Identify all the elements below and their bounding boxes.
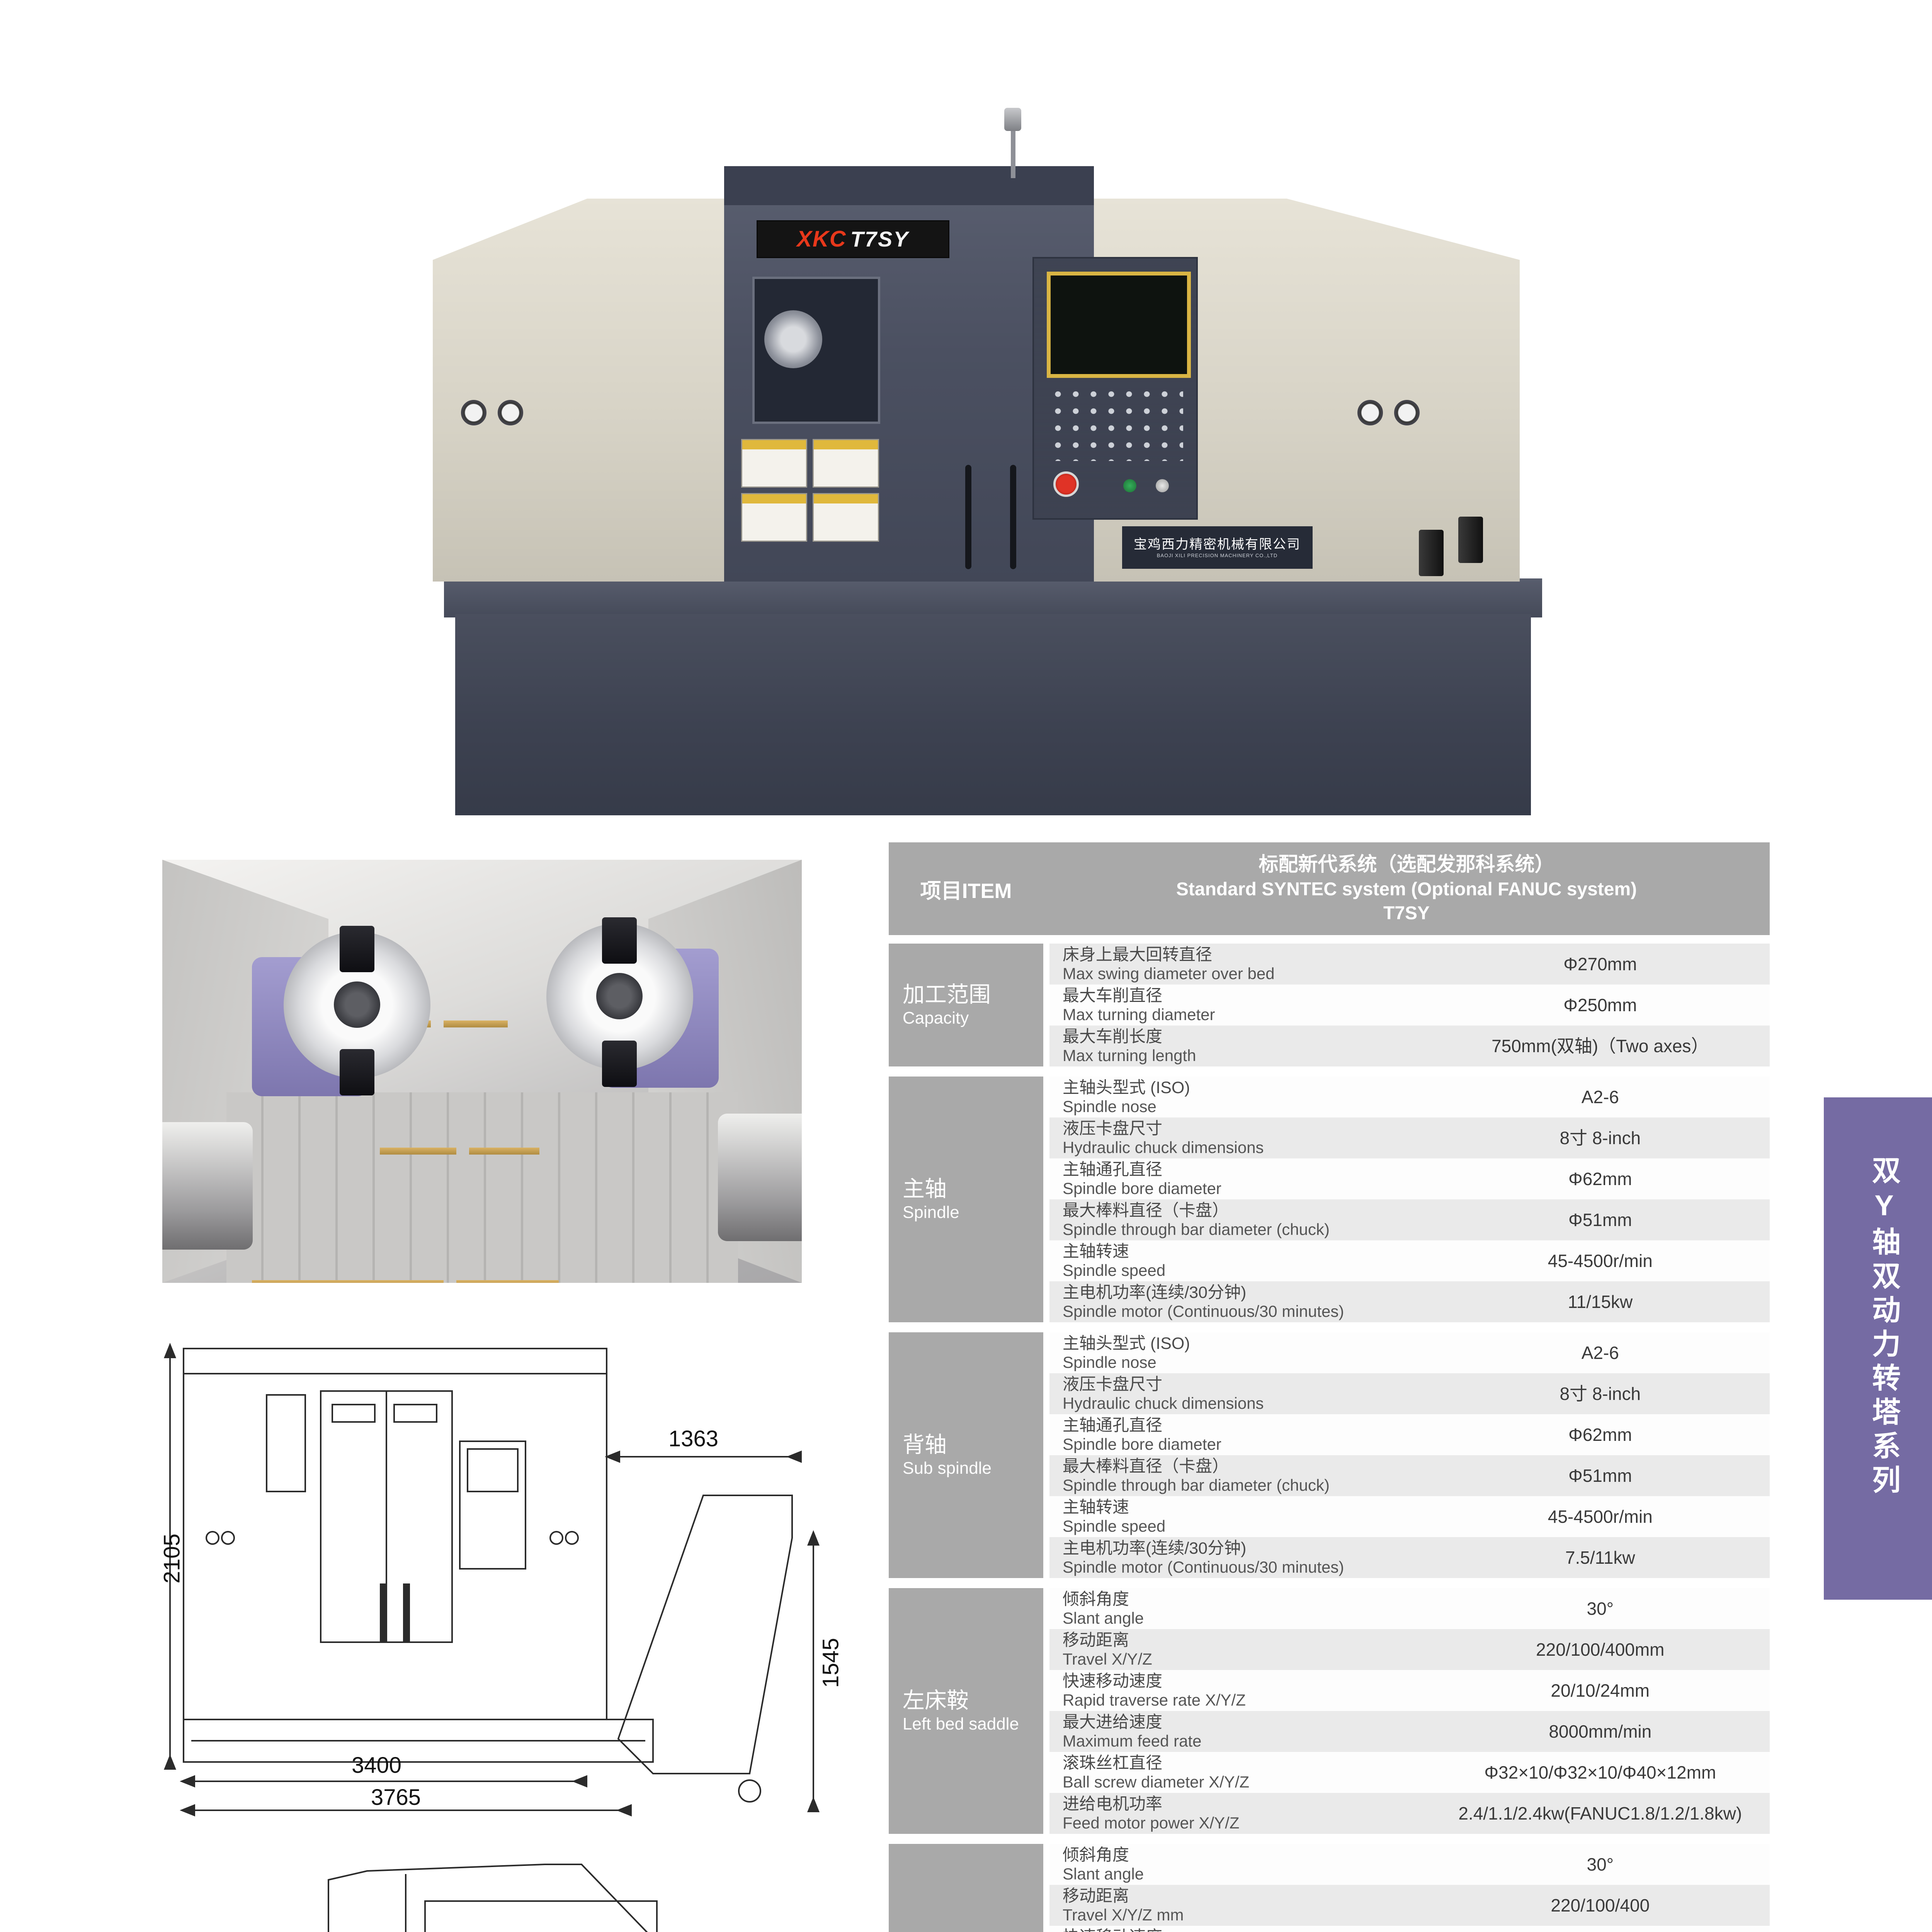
spec-row: 主轴头型式 (ISO)Spindle noseA2-6 — [1049, 1332, 1770, 1373]
company-plate: 宝鸡西力精密机械有限公司 BAOJI XILI PRECISION MACHIN… — [1122, 526, 1313, 568]
spec-row-label-cn: 滚珠丝杠直径 — [1063, 1754, 1439, 1772]
header-system-cn: 标配新代系统（选配发那科系统） — [1043, 852, 1770, 877]
spec-row-label-cn: 最大进给速度 — [1063, 1713, 1439, 1731]
spec-row-label-en: Max turning diameter — [1063, 1005, 1439, 1024]
section-label-en: Left bed saddle — [903, 1714, 1043, 1735]
spec-row-value: 30° — [1439, 1599, 1770, 1619]
spec-row-label-en: Spindle bore diameter — [1063, 1435, 1439, 1453]
nameplate-brand: XKC — [797, 226, 846, 252]
way-cover-strip — [380, 1148, 457, 1155]
spec-row-value: A2-6 — [1439, 1087, 1770, 1107]
section-label: 主轴Spindle — [889, 1077, 1043, 1322]
left-turret-unit — [162, 1122, 253, 1250]
spec-row-value: Φ51mm — [1439, 1466, 1770, 1486]
dim-conveyor-width: 1363 — [668, 1426, 718, 1452]
side-drawing-lines — [274, 1847, 862, 1932]
dim-front-height: 2105 — [159, 1520, 185, 1597]
spec-table: 项目ITEM 标配新代系统（选配发那科系统） Standard SYNTEC s… — [889, 842, 1770, 1932]
spec-row: 滚珠丝杠直径Ball screw diameter X/Y/ZΦ32×10/Φ3… — [1049, 1752, 1770, 1793]
spec-row: 最大车削直径Max turning diameterΦ250mm — [1049, 985, 1770, 1026]
spec-row-label-cn: 快速移动速度 — [1063, 1672, 1439, 1690]
spec-row: 快速移动速度Rapid traverse rate X/Y/Z20/10/24 … — [1049, 1926, 1770, 1932]
company-plate-en: BAOJI XILI PRECISION MACHINERY CO.,LTD — [1157, 553, 1278, 559]
machine-base-band — [444, 578, 1542, 617]
spec-row-value: 2.4/1.1/2.4kw(FANUC1.8/1.2/1.8kw) — [1439, 1803, 1770, 1824]
section-label: 左床鞍Left bed saddle — [889, 1588, 1043, 1834]
interior-floor — [226, 1092, 738, 1283]
front-outline-drawing: 2105 1363 1545 3400 3765 — [155, 1329, 869, 1820]
spec-row-label: 倾斜角度Slant angle — [1049, 1590, 1439, 1627]
spec-row: 进给电机功率Feed motor power X/Y/Z2.4/1.1/2.4k… — [1049, 1793, 1770, 1834]
header-item-label: 项目ITEM — [889, 842, 1043, 935]
section-label: 加工范围Capacity — [889, 944, 1043, 1066]
spec-row: 移动距离Travel X/Y/Z220/100/400mm — [1049, 1629, 1770, 1670]
spec-row-label-en: Maximum feed rate — [1063, 1732, 1439, 1750]
spec-row-label-en: Slant angle — [1063, 1609, 1439, 1627]
spec-row-label-en: Spindle through bar diameter (chuck) — [1063, 1220, 1439, 1238]
coolant-pump-icon — [1458, 517, 1483, 563]
spec-row-label-en: Spindle nose — [1063, 1353, 1439, 1371]
spec-row-label: 最大车削直径Max turning diameter — [1049, 986, 1439, 1023]
spec-row-value: 220/100/400mm — [1439, 1639, 1770, 1660]
spec-row-label: 最大进给速度Maximum feed rate — [1049, 1713, 1439, 1750]
section-label-en: Capacity — [903, 1008, 1043, 1029]
spec-row-label: 床身上最大回转直径Max swing diameter over bed — [1049, 946, 1439, 982]
spec-row-label-cn: 倾斜角度 — [1063, 1590, 1439, 1609]
spec-row-label-cn: 主轴通孔直径 — [1063, 1416, 1439, 1435]
spec-row-label-cn: 主轴转速 — [1063, 1242, 1439, 1261]
door-handle-left — [965, 465, 971, 569]
spec-row: 主电机功率(连续/30分钟)Spindle motor (Continuous/… — [1049, 1281, 1770, 1322]
spec-row-value: 7.5/11kw — [1439, 1548, 1770, 1568]
spec-row-label: 进给电机功率Feed motor power X/Y/Z — [1049, 1795, 1439, 1832]
spec-row-label-en: Spindle bore diameter — [1063, 1179, 1439, 1197]
spec-row: 主电机功率(连续/30分钟)Spindle motor (Continuous/… — [1049, 1537, 1770, 1578]
spec-row: 快速移动速度Rapid traverse rate X/Y/Z20/10/24m… — [1049, 1670, 1770, 1711]
spec-row-label-cn: 倾斜角度 — [1063, 1846, 1439, 1864]
spec-row-label: 主电机功率(连续/30分钟)Spindle motor (Continuous/… — [1049, 1283, 1439, 1320]
right-chuck — [546, 923, 693, 1070]
spec-row-label-cn: 主电机功率(连续/30分钟) — [1063, 1539, 1439, 1558]
section-label-en: Sub spindle — [903, 1458, 1043, 1479]
spec-sections: 加工范围Capacity床身上最大回转直径Max swing diameter … — [889, 944, 1770, 1932]
spec-row-label: 快速移动速度Rapid traverse rate X/Y/Z — [1049, 1928, 1439, 1932]
section-rows: 床身上最大回转直径Max swing diameter over bedΦ270… — [1049, 944, 1770, 1066]
spec-row-label: 快速移动速度Rapid traverse rate X/Y/Z — [1049, 1672, 1439, 1709]
spec-row: 主轴头型式 (ISO)Spindle noseA2-6 — [1049, 1077, 1770, 1117]
series-banner-text: 双Y轴双动力转塔系列 — [1864, 1155, 1905, 1499]
spec-row-value: 45-4500r/min — [1439, 1507, 1770, 1527]
pressure-gauge-icon — [461, 400, 486, 425]
header-system-column: 标配新代系统（选配发那科系统） Standard SYNTEC system (… — [1043, 842, 1770, 935]
spec-row-value: Φ62mm — [1439, 1169, 1770, 1189]
spec-row-value: 45-4500r/min — [1439, 1251, 1770, 1271]
section-label-en: Spindle — [903, 1202, 1043, 1223]
spec-row-label-cn: 主轴通孔直径 — [1063, 1160, 1439, 1179]
spec-row-label-cn: 液压卡盘尺寸 — [1063, 1375, 1439, 1394]
spec-section: 背轴Sub spindle主轴头型式 (ISO)Spindle noseA2-6… — [889, 1332, 1770, 1578]
spec-row-label: 倾斜角度Slant angle — [1049, 1846, 1439, 1883]
cnc-control-panel — [1032, 257, 1198, 520]
spec-row-value: 20/10/24mm — [1439, 1680, 1770, 1701]
series-banner: 双Y轴双动力转塔系列 — [1824, 1097, 1932, 1600]
spec-row-value: 8寸 8-inch — [1439, 1128, 1770, 1148]
way-cover-strip — [444, 1020, 508, 1027]
header-system-en: Standard SYNTEC system (Optional FANUC s… — [1043, 878, 1770, 901]
cnc-screen — [1047, 272, 1191, 378]
way-cover-strip — [469, 1148, 539, 1155]
machine-left-cabinet — [433, 199, 730, 582]
spec-row-label-en: Hydraulic chuck dimensions — [1063, 1394, 1439, 1412]
spec-row: 主轴通孔直径Spindle bore diameterΦ62mm — [1049, 1414, 1770, 1455]
spec-row-label: 液压卡盘尺寸Hydraulic chuck dimensions — [1049, 1375, 1439, 1412]
spec-row-value: Φ51mm — [1439, 1210, 1770, 1230]
spec-row: 主轴通孔直径Spindle bore diameterΦ62mm — [1049, 1158, 1770, 1199]
spec-row-value: 220/100/400 — [1439, 1895, 1770, 1916]
cnc-keypad — [1047, 383, 1183, 461]
spec-row: 移动距离Travel X/Y/Z mm220/100/400 — [1049, 1885, 1770, 1926]
left-chuck — [284, 932, 430, 1078]
spec-row-label-cn: 主轴转速 — [1063, 1498, 1439, 1517]
spec-row-value: 11/15kw — [1439, 1292, 1770, 1312]
panel-button-green — [1123, 479, 1136, 492]
spec-row: 主轴转速Spindle speed45-4500r/min — [1049, 1496, 1770, 1537]
spec-row: 液压卡盘尺寸Hydraulic chuck dimensions8寸 8-inc… — [1049, 1117, 1770, 1158]
spec-row-label-en: Hydraulic chuck dimensions — [1063, 1138, 1439, 1156]
dim-width-total: 3765 — [371, 1784, 421, 1810]
section-label-cn: 背轴 — [903, 1432, 1043, 1458]
section-label: 背轴Sub spindle — [889, 1332, 1043, 1578]
pressure-gauge-icon — [498, 400, 523, 425]
spec-row-label: 主电机功率(连续/30分钟)Spindle motor (Continuous/… — [1049, 1539, 1439, 1576]
spec-row-label: 主轴头型式 (ISO)Spindle nose — [1049, 1334, 1439, 1371]
spec-row: 最大棒料直径（卡盘）Spindle through bar diameter (… — [1049, 1455, 1770, 1496]
spec-row-label-en: Max turning length — [1063, 1046, 1439, 1065]
spec-row-value: 8000mm/min — [1439, 1721, 1770, 1742]
spec-row-label-en: Feed motor power X/Y/Z — [1063, 1814, 1439, 1832]
spec-row-label-cn: 最大车削直径 — [1063, 986, 1439, 1005]
spec-row-label-en: Slant angle — [1063, 1865, 1439, 1883]
spec-row-label-en: Spindle speed — [1063, 1261, 1439, 1279]
chuck-through-window — [764, 310, 822, 368]
coolant-pump-icon — [1419, 530, 1444, 576]
spec-row-label-en: Travel X/Y/Z mm — [1063, 1906, 1439, 1924]
spec-row-value: 8寸 8-inch — [1439, 1384, 1770, 1404]
spec-row-label: 主轴转速Spindle speed — [1049, 1498, 1439, 1535]
spec-row-label-cn: 主轴头型式 (ISO) — [1063, 1078, 1439, 1097]
panel-button-gray — [1156, 479, 1169, 492]
spec-row-value: 30° — [1439, 1854, 1770, 1875]
spec-row-label-cn: 快速移动速度 — [1063, 1928, 1439, 1932]
spec-row-label-cn: 最大棒料直径（卡盘） — [1063, 1457, 1439, 1476]
machine-window — [752, 277, 880, 424]
spec-row-value: Φ62mm — [1439, 1425, 1770, 1445]
spec-section: 主轴Spindle主轴头型式 (ISO)Spindle noseA2-6液压卡盘… — [889, 1077, 1770, 1322]
spec-row-label-en: Spindle nose — [1063, 1097, 1439, 1116]
spec-row-label: 主轴转速Spindle speed — [1049, 1242, 1439, 1279]
machine-nameplate: XKC T7SY — [758, 221, 948, 257]
spec-row: 床身上最大回转直径Max swing diameter over bedΦ270… — [1049, 944, 1770, 985]
section-label-cn: 主轴 — [903, 1176, 1043, 1202]
spec-row-label-cn: 进给电机功率 — [1063, 1795, 1439, 1813]
side-outline-drawing: 1096 445 1977 — [274, 1847, 862, 1932]
machine-tower-top — [724, 166, 1094, 205]
pressure-gauge-icon — [1357, 400, 1383, 425]
spec-row-label: 滚珠丝杠直径Ball screw diameter X/Y/Z — [1049, 1754, 1439, 1791]
section-label-cn: 加工范围 — [903, 981, 1043, 1008]
spec-row-value: 750mm(双轴)（Two axes） — [1439, 1036, 1770, 1056]
spec-row-label: 最大棒料直径（卡盘）Spindle through bar diameter (… — [1049, 1457, 1439, 1494]
spec-row-label-cn: 主电机功率(连续/30分钟) — [1063, 1283, 1439, 1302]
company-plate-cn: 宝鸡西力精密机械有限公司 — [1134, 537, 1301, 553]
spec-section: 加工范围Capacity床身上最大回转直径Max swing diameter … — [889, 944, 1770, 1066]
dim-conveyor-height: 1545 — [818, 1624, 844, 1702]
spec-row-label-cn: 移动距离 — [1063, 1631, 1439, 1650]
spec-row-label-en: Spindle motor (Continuous/30 minutes) — [1063, 1302, 1439, 1320]
spec-row-label-cn: 最大棒料直径（卡盘） — [1063, 1201, 1439, 1220]
signal-lamp-pole — [1011, 124, 1015, 178]
section-rows: 主轴头型式 (ISO)Spindle noseA2-6液压卡盘尺寸Hydraul… — [1049, 1077, 1770, 1322]
spec-row-label-cn: 液压卡盘尺寸 — [1063, 1119, 1439, 1138]
machine-photo: XKC T7SY 宝鸡西力精密机械有限公司 BAOJI XILI PRECISI… — [433, 166, 1553, 815]
spec-row-value: Φ250mm — [1439, 995, 1770, 1015]
spec-row: 主轴转速Spindle speed45-4500r/min — [1049, 1240, 1770, 1281]
spec-row: 最大车削长度Max turning length750mm(双轴)（Two ax… — [1049, 1026, 1770, 1066]
front-drawing-lines — [155, 1329, 869, 1820]
section-rows: 倾斜角度Slant angle30°移动距离Travel X/Y/Z mm220… — [1049, 1844, 1770, 1932]
spec-row-label-cn: 床身上最大回转直径 — [1063, 946, 1439, 964]
spec-row-label-en: Travel X/Y/Z — [1063, 1650, 1439, 1668]
spec-section: 左床鞍Left bed saddle倾斜角度Slant angle30°移动距离… — [889, 1588, 1770, 1834]
spec-row-label-en: Spindle motor (Continuous/30 minutes) — [1063, 1558, 1439, 1576]
spec-section: 右床鞍Right bed saddle倾斜角度Slant angle30°移动距… — [889, 1844, 1770, 1932]
spec-row-label: 液压卡盘尺寸Hydraulic chuck dimensions — [1049, 1119, 1439, 1156]
spec-row: 倾斜角度Slant angle30° — [1049, 1588, 1770, 1629]
spec-table-header: 项目ITEM 标配新代系统（选配发那科系统） Standard SYNTEC s… — [889, 842, 1770, 935]
spec-row-label: 主轴通孔直径Spindle bore diameter — [1049, 1416, 1439, 1453]
nameplate-model: T7SY — [850, 226, 909, 252]
spec-row-value: A2-6 — [1439, 1343, 1770, 1363]
way-cover-strip — [456, 1280, 559, 1283]
door-handle-right — [1010, 465, 1016, 569]
spec-row-label-en: Ball screw diameter X/Y/Z — [1063, 1773, 1439, 1791]
signal-lamp-icon — [1004, 108, 1021, 131]
spec-row-label-en: Spindle through bar diameter (chuck) — [1063, 1476, 1439, 1494]
interior-photo — [162, 860, 802, 1283]
spec-row-label-en: Max swing diameter over bed — [1063, 964, 1439, 983]
emergency-stop-button — [1053, 471, 1079, 497]
spec-row-label: 主轴通孔直径Spindle bore diameter — [1049, 1160, 1439, 1197]
way-cover-strip — [252, 1280, 444, 1283]
spec-row-value: Φ32×10/Φ32×10/Φ40×12mm — [1439, 1762, 1770, 1783]
section-label-cn: 左床鞍 — [903, 1687, 1043, 1714]
right-turret-unit — [718, 1114, 802, 1241]
section-rows: 主轴头型式 (ISO)Spindle noseA2-6液压卡盘尺寸Hydraul… — [1049, 1332, 1770, 1578]
header-model: T7SY — [1043, 901, 1770, 925]
spec-row-label: 最大车削长度Max turning length — [1049, 1027, 1439, 1064]
spec-row-label: 移动距离Travel X/Y/Z mm — [1049, 1887, 1439, 1923]
warning-labels — [741, 439, 887, 543]
pressure-gauge-icon — [1394, 400, 1420, 425]
section-label: 右床鞍Right bed saddle — [889, 1844, 1043, 1932]
spec-row-label: 移动距离Travel X/Y/Z — [1049, 1631, 1439, 1668]
dim-width-inner: 3400 — [352, 1752, 401, 1778]
machine-base — [455, 614, 1531, 815]
spec-row: 最大棒料直径（卡盘）Spindle through bar diameter (… — [1049, 1199, 1770, 1240]
section-rows: 倾斜角度Slant angle30°移动距离Travel X/Y/Z220/10… — [1049, 1588, 1770, 1834]
spec-row: 最大进给速度Maximum feed rate8000mm/min — [1049, 1711, 1770, 1752]
spec-row-label: 最大棒料直径（卡盘）Spindle through bar diameter (… — [1049, 1201, 1439, 1238]
spec-row: 倾斜角度Slant angle30° — [1049, 1844, 1770, 1885]
spec-row-label-en: Spindle speed — [1063, 1517, 1439, 1535]
spec-row-label-cn: 最大车削长度 — [1063, 1027, 1439, 1046]
spec-row-value: Φ270mm — [1439, 954, 1770, 975]
spec-row-label-cn: 移动距离 — [1063, 1887, 1439, 1905]
spec-row-label-cn: 主轴头型式 (ISO) — [1063, 1334, 1439, 1353]
spec-row-label-en: Rapid traverse rate X/Y/Z — [1063, 1691, 1439, 1709]
spec-row-label: 主轴头型式 (ISO)Spindle nose — [1049, 1078, 1439, 1115]
spec-row: 液压卡盘尺寸Hydraulic chuck dimensions8寸 8-inc… — [1049, 1373, 1770, 1414]
